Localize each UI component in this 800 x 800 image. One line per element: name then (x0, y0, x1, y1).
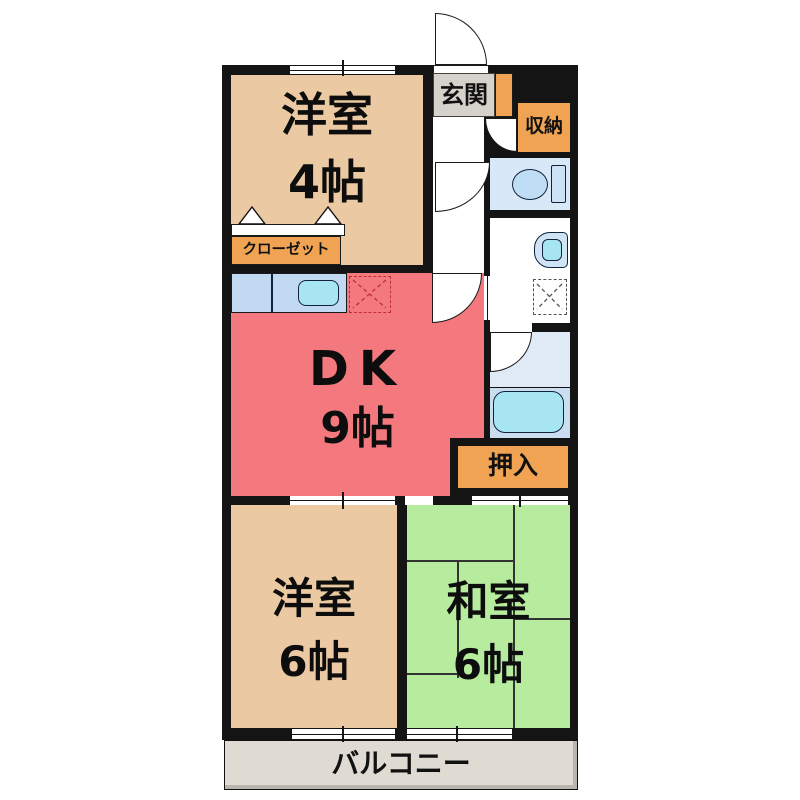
toilet-room (490, 158, 570, 210)
room-japanese-6-name: 和室 (407, 570, 570, 633)
room-japanese-6-size: 6帖 (407, 633, 570, 696)
tatami-line (407, 560, 513, 562)
room-western-6-label: 洋室 6帖 (231, 567, 397, 693)
window-bottom-western6-tick (342, 726, 344, 742)
entrance-box: 玄関 (433, 73, 495, 117)
window-bottom-japanese6-tick (456, 726, 458, 742)
washbasin-bowl (542, 239, 562, 261)
washing-machine-icon (533, 279, 567, 315)
opening-dk-japanese6 (405, 496, 433, 505)
room-western-4-label: 洋室 4帖 (231, 82, 423, 215)
entrance-door-swing-icon (435, 13, 487, 65)
washroom (490, 218, 570, 323)
refrigerator-space-icon (349, 276, 391, 313)
oshiire-fusuma-tick (519, 494, 521, 507)
oshiire-label: 押入 (488, 451, 538, 480)
room-japanese-6-label: 和室 6帖 (407, 570, 570, 696)
bathroom-door-opening (490, 323, 532, 332)
storage-label: 収納 (525, 115, 563, 137)
opening-dk-western6-tick (342, 492, 344, 509)
window-bottom-japanese6 (407, 729, 512, 739)
kitchen-sink-icon (298, 280, 339, 306)
room-dk-label: DK 9帖 (231, 338, 484, 458)
closet-label: クローゼット (243, 242, 330, 258)
balcony: バルコニー (224, 740, 578, 790)
closet-door-strip (231, 224, 345, 236)
storage-box: 収納 (518, 103, 570, 152)
room-dk-size: 9帖 (231, 400, 484, 457)
balcony-label: バルコニー (331, 747, 470, 780)
floor-plan: 洋室 4帖 クローゼット 玄関 収納 (0, 0, 800, 800)
toilet-bowl-icon (512, 169, 548, 200)
room-western-4-name: 洋室 (231, 82, 423, 149)
toilet-icon (551, 165, 566, 203)
bathtub-icon (493, 391, 564, 433)
shoe-cabinet (495, 73, 513, 117)
window-top-tick (342, 60, 344, 76)
closet-label-box: クローゼット (231, 236, 341, 265)
room-western-6-size: 6帖 (231, 630, 397, 693)
kitchen-counter (231, 273, 347, 313)
washroom-sliding-door (484, 276, 492, 320)
room-dk-name: DK (231, 338, 484, 400)
room-western-4-size: 4帖 (231, 149, 423, 216)
room-western-6-name: 洋室 (231, 567, 397, 630)
entrance-label: 玄関 (440, 81, 488, 109)
